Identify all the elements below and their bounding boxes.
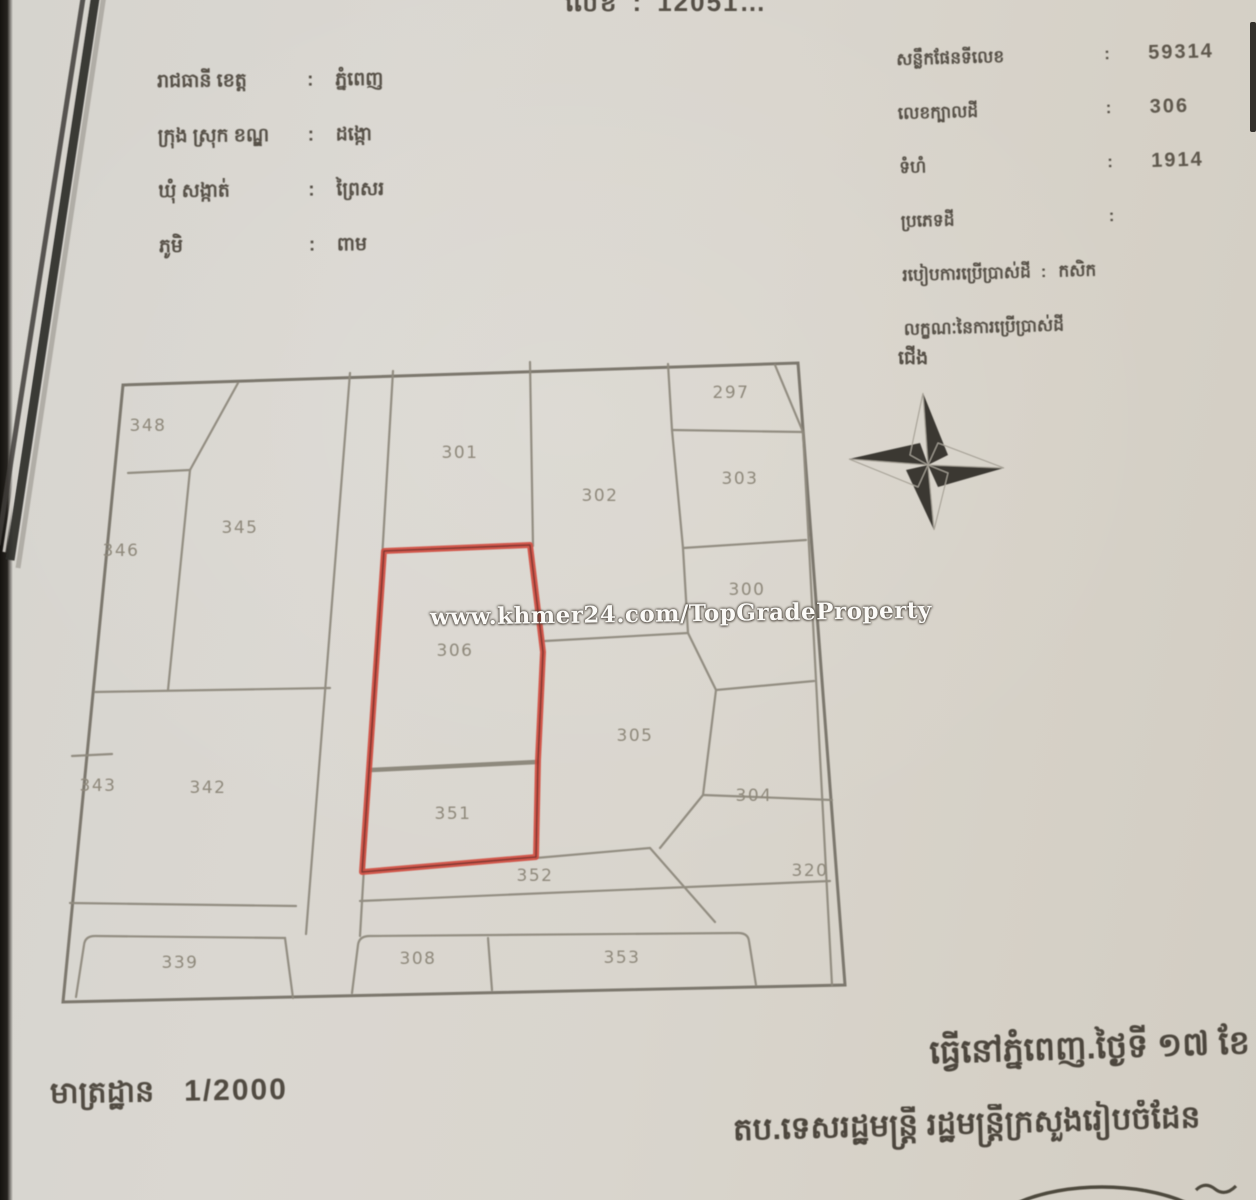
map-scale: មាត្រដ្ឋាន1/2000 bbox=[50, 1070, 289, 1118]
parcel-label-346: 346 bbox=[103, 541, 140, 561]
map-scale-label: មាត្រដ្ឋាន bbox=[50, 1075, 155, 1110]
compass-rose-icon bbox=[849, 393, 1004, 530]
parcel-label-351: 351 bbox=[435, 804, 472, 824]
watermark-text: www.khmer24.com/TopGradeProperty bbox=[430, 598, 830, 631]
cadastral-map: 3483463453433423393013022973033003063513… bbox=[0, 0, 1256, 1200]
stamp-seal bbox=[982, 1185, 1236, 1200]
parcel-label-339: 339 bbox=[162, 953, 199, 973]
parcel-label-300: 300 bbox=[729, 580, 766, 600]
parcel-label-342: 342 bbox=[190, 778, 227, 798]
parcel-label-320: 320 bbox=[792, 861, 829, 881]
parcel-label-352: 352 bbox=[517, 866, 554, 886]
parcel-label-306: 306 bbox=[437, 641, 474, 661]
map-scale-value: 1/2000 bbox=[184, 1073, 288, 1108]
scanned-cadastral-document: លេខ:12051… រាជធានី ខេត្ត:ភ្នំពេញក្រុង ស្… bbox=[0, 0, 1256, 1200]
parcel-label-308: 308 bbox=[400, 949, 437, 969]
scan-diagonal-band bbox=[0, 0, 104, 568]
parcel-labels: 3483463453433423393013022973033003063513… bbox=[80, 383, 829, 973]
stamp-text-fragment bbox=[1196, 1185, 1236, 1192]
parcel-label-343: 343 bbox=[80, 776, 117, 796]
parcel-label-345: 345 bbox=[222, 518, 259, 538]
parcel-label-353: 353 bbox=[604, 948, 641, 968]
parcel-label-301: 301 bbox=[442, 443, 479, 463]
parcel-label-348: 348 bbox=[130, 416, 167, 436]
parcel-label-297: 297 bbox=[713, 383, 750, 403]
parcel-label-302: 302 bbox=[582, 486, 619, 506]
parcel-label-305: 305 bbox=[617, 726, 654, 746]
parcel-label-304: 304 bbox=[736, 786, 773, 806]
parcel-label-303: 303 bbox=[722, 469, 759, 489]
